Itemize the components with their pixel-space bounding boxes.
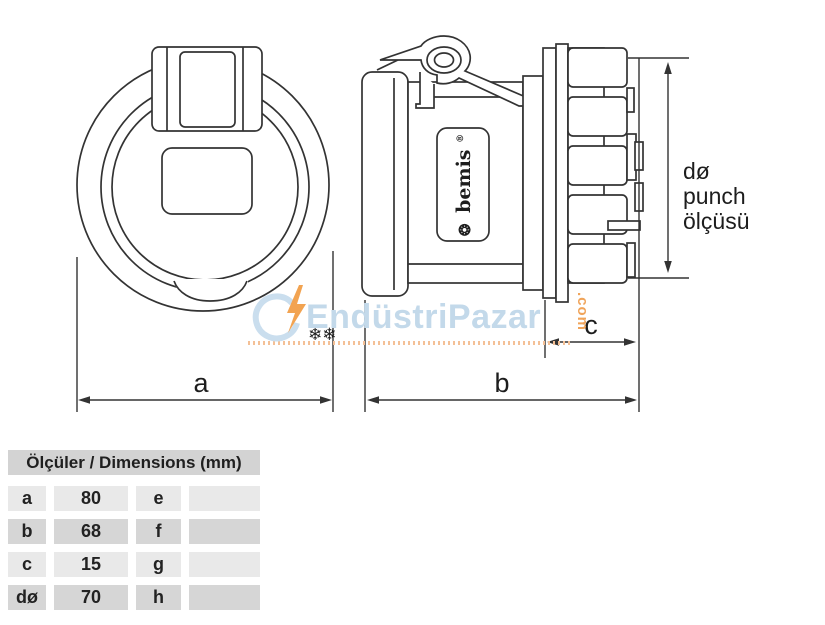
dim-val-h	[189, 585, 260, 610]
dim-val-e	[189, 486, 260, 511]
brand-label: ❂ bemis ®	[437, 128, 489, 241]
dim-val-a: 80	[54, 486, 128, 511]
dim-val-b: 68	[54, 519, 128, 544]
dim-key-c: c	[8, 552, 46, 577]
side-front-cap	[362, 72, 408, 296]
dim-key-a: a	[8, 486, 46, 511]
dim-val-g	[189, 552, 260, 577]
lid-hinge-tab	[152, 47, 262, 131]
watermark: ❄❄ EndüstriPazar .com	[248, 285, 591, 344]
threaded-rear	[568, 48, 643, 283]
dim-key-f: f	[136, 519, 181, 544]
dim-val-do: 70	[54, 585, 128, 610]
dim-key-g: g	[136, 552, 181, 577]
dim-key-b: b	[8, 519, 46, 544]
dim-key-e: e	[136, 486, 181, 511]
label-punch: punch	[683, 183, 746, 209]
technical-drawing: ❂ bemis ®	[0, 0, 825, 445]
table-row: a 80 e	[8, 486, 260, 511]
table-row: dø 70 h	[8, 585, 260, 610]
side-view: ❂ bemis ®	[362, 36, 643, 302]
watermark-text: EndüstriPazar	[306, 298, 541, 336]
bottom-bump-mask	[173, 279, 248, 302]
hook-icon	[256, 296, 297, 338]
lid-label-window	[162, 148, 252, 214]
brand-name: bemis	[453, 150, 475, 213]
dim-val-c: 15	[54, 552, 128, 577]
registered-mark: ®	[456, 134, 466, 143]
label-a: a	[193, 368, 209, 398]
label-do: dø	[683, 158, 710, 184]
product-drawing-page: ❂ bemis ®	[0, 0, 825, 625]
table-row: c 15 g	[8, 552, 260, 577]
watermark-suffix: .com	[574, 292, 591, 331]
dim-do	[664, 62, 672, 273]
dim-val-f	[189, 519, 260, 544]
table-header: Ölçüler / Dimensions (mm)	[8, 450, 260, 475]
dimensions-table: Ölçüler / Dimensions (mm) a 80 e b 68 f …	[8, 450, 260, 618]
svg-text:❂ bemis ®: ❂ bemis ®	[453, 134, 475, 237]
table-row: b 68 f	[8, 519, 260, 544]
mounting-collar	[523, 44, 568, 302]
dim-key-h: h	[136, 585, 181, 610]
dim-key-do: dø	[8, 585, 46, 610]
pivot-outer	[427, 47, 461, 73]
bemis-logo-icon: ❂	[456, 223, 474, 237]
label-b: b	[494, 368, 509, 398]
front-view	[77, 47, 329, 311]
label-olcusu: ölçüsü	[683, 208, 749, 234]
